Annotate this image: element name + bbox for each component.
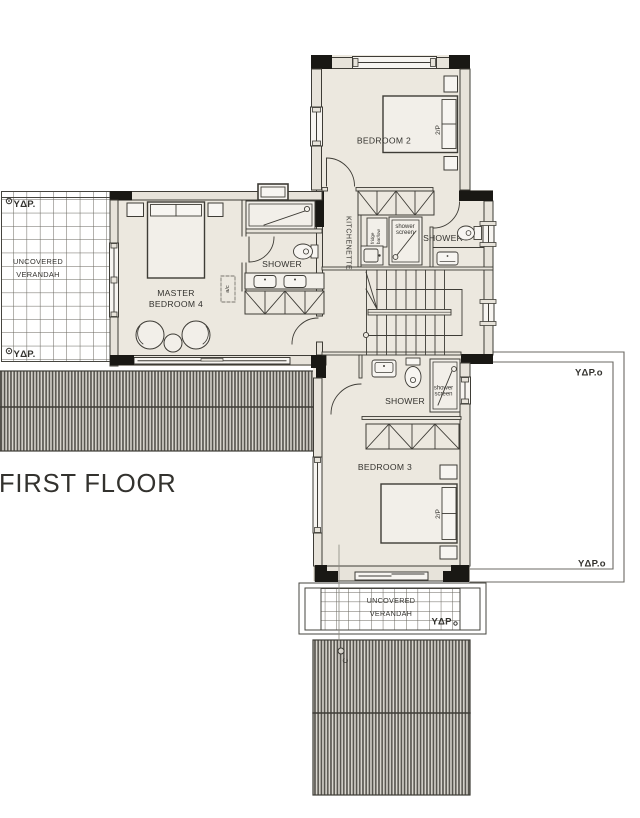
svg-text:YΔP.: YΔP. xyxy=(14,199,36,210)
svg-text:UNCOVERED: UNCOVERED xyxy=(13,257,63,266)
svg-text:YΔP.: YΔP. xyxy=(14,349,36,360)
svg-text:YΔP.o: YΔP.o xyxy=(575,368,603,379)
svg-text:SHOWER: SHOWER xyxy=(423,233,463,243)
svg-text:bar/low: bar/low xyxy=(376,229,381,244)
svg-text:2/P: 2/P xyxy=(435,509,442,519)
svg-text:a/c: a/c xyxy=(225,285,231,293)
svg-text:UNCOVERED: UNCOVERED xyxy=(367,596,416,605)
svg-text:YΔP.o: YΔP.o xyxy=(578,559,606,570)
svg-text:VERANDAH: VERANDAH xyxy=(370,609,412,618)
svg-text:BEDROOM 3: BEDROOM 3 xyxy=(358,462,412,472)
svg-text:BEDROOM 2: BEDROOM 2 xyxy=(357,136,411,146)
svg-text:KITCHENETTE: KITCHENETTE xyxy=(345,216,352,270)
svg-text:FIRST FLOOR: FIRST FLOOR xyxy=(0,470,176,498)
svg-text:SHOWER: SHOWER xyxy=(385,396,425,406)
svg-text:VERANDAH: VERANDAH xyxy=(16,270,59,279)
svg-text:SHOWER: SHOWER xyxy=(262,259,302,269)
svg-text:MASTER: MASTER xyxy=(157,288,195,298)
svg-text:fridge: fridge xyxy=(370,232,375,244)
svg-text:screen: screen xyxy=(396,230,414,236)
svg-text:BEDROOM 4: BEDROOM 4 xyxy=(149,299,203,309)
svg-text:screen: screen xyxy=(434,392,452,398)
svg-text:YΔP: YΔP xyxy=(432,617,453,628)
svg-text:2/P: 2/P xyxy=(435,125,442,135)
